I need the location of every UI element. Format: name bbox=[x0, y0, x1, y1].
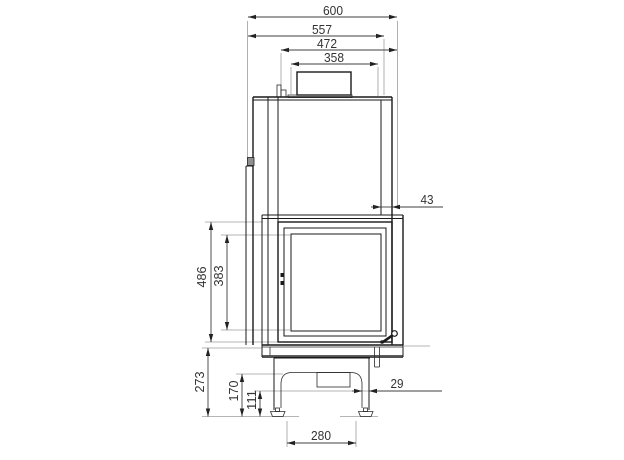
dimension-111: 111 bbox=[245, 390, 260, 417]
air-inlet-box bbox=[317, 373, 350, 388]
dim-label-383: 383 bbox=[212, 265, 226, 286]
dimension-273: 273 bbox=[193, 348, 208, 417]
dimension-280: 280 bbox=[287, 429, 356, 443]
door-glass bbox=[291, 234, 381, 331]
dimension-486: 486 bbox=[195, 222, 211, 342]
dim-label-170: 170 bbox=[227, 380, 241, 401]
dimension-383: 383 bbox=[212, 235, 227, 330]
hinge-mark bbox=[281, 281, 285, 285]
dim-label-43: 43 bbox=[421, 193, 434, 207]
dim-label-472: 472 bbox=[317, 37, 337, 51]
hearth-band bbox=[262, 345, 403, 357]
technical-drawing-canvas: 600 557 472 358 43 486 383 273 170 111 bbox=[0, 0, 624, 460]
dimension-170: 170 bbox=[227, 374, 242, 417]
dim-label-111: 111 bbox=[245, 390, 259, 410]
dimension-600: 600 bbox=[248, 4, 397, 18]
fireplace-outline bbox=[246, 72, 403, 417]
hinge-block bbox=[248, 158, 255, 166]
flue-collar bbox=[288, 72, 352, 98]
dim-label-280: 280 bbox=[311, 429, 331, 443]
dim-label-29: 29 bbox=[391, 377, 404, 391]
adjustable-foot-left bbox=[271, 408, 286, 417]
dim-label-358: 358 bbox=[324, 51, 344, 65]
dimension-29: 29 bbox=[352, 377, 442, 391]
dimension-43: 43 bbox=[371, 193, 443, 207]
drawing-area: 600 557 472 358 43 486 383 273 170 111 bbox=[0, 0, 624, 460]
damper-bracket bbox=[277, 85, 286, 97]
dim-label-486: 486 bbox=[195, 266, 209, 287]
dimension-358: 358 bbox=[291, 51, 378, 65]
dim-label-557: 557 bbox=[312, 23, 332, 37]
dim-label-273: 273 bbox=[193, 371, 207, 392]
dim-label-600: 600 bbox=[323, 4, 343, 18]
dimension-557: 557 bbox=[248, 23, 384, 37]
door bbox=[278, 222, 392, 342]
adjustable-foot-right bbox=[359, 408, 374, 417]
hinge-mark bbox=[281, 273, 285, 277]
dimension-472: 472 bbox=[281, 37, 397, 51]
pedestal bbox=[271, 358, 374, 417]
